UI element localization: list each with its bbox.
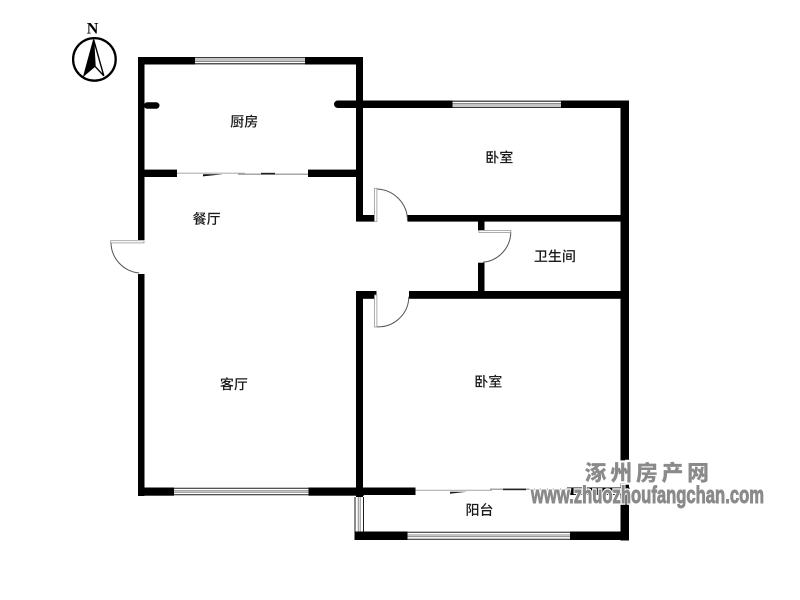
svg-text:N: N	[87, 20, 99, 37]
svg-text:www.zhuozhoufangchan.com: www.zhuozhoufangchan.com	[530, 482, 764, 509]
